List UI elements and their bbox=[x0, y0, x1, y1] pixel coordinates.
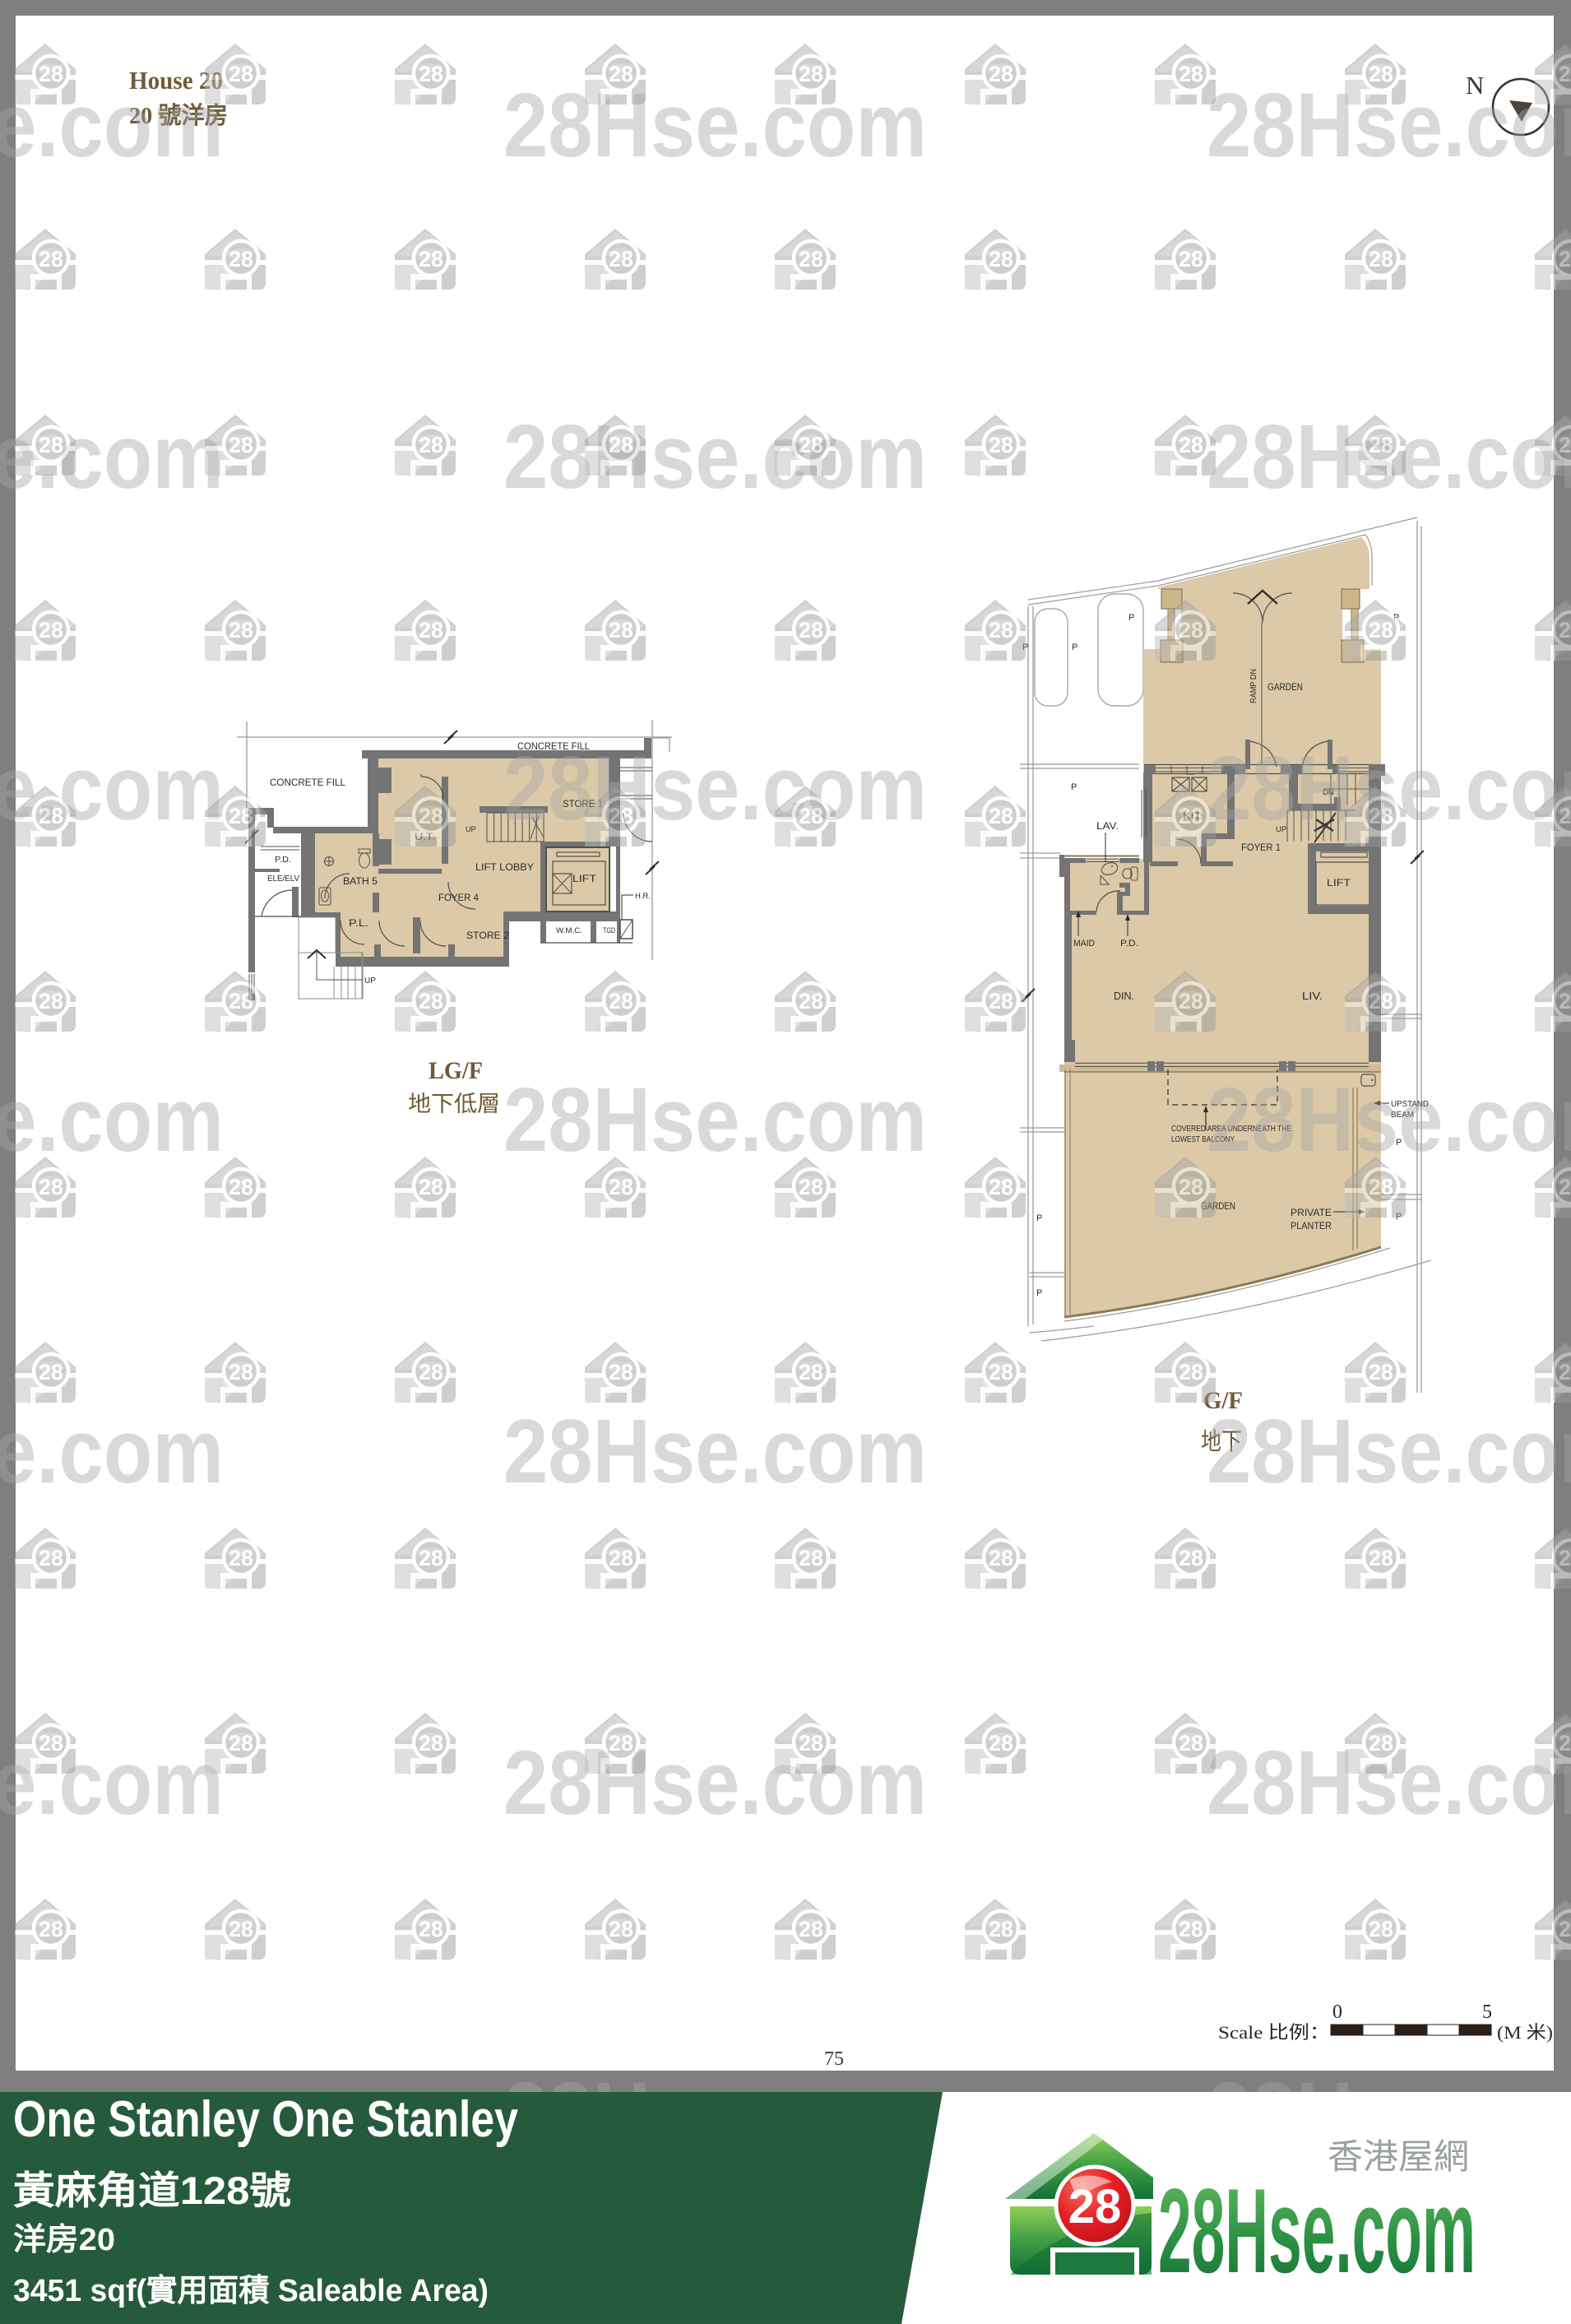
svg-text:28Hse.com: 28Hse.com bbox=[503, 738, 927, 839]
svg-text:LG/F: LG/F bbox=[429, 1057, 483, 1084]
svg-text:CONCRETE FILL: CONCRETE FILL bbox=[270, 777, 345, 788]
svg-text:LIFT LOBBY: LIFT LOBBY bbox=[475, 861, 534, 873]
svg-text:地下低層: 地下低層 bbox=[408, 1092, 500, 1116]
svg-text:LIV.: LIV. bbox=[1302, 990, 1323, 1002]
svg-text:28Hse.com: 28Hse.com bbox=[0, 1069, 224, 1171]
svg-text:0: 0 bbox=[1332, 2002, 1342, 2023]
svg-text:One Stanley One Stanley: One Stanley One Stanley bbox=[13, 2091, 518, 2148]
svg-text:28Hse.com: 28Hse.com bbox=[0, 1401, 224, 1502]
svg-text:UP: UP bbox=[364, 976, 376, 986]
svg-text:3451 sqf(實用面積 Saleable Area): 3451 sqf(實用面積 Saleable Area) bbox=[13, 2274, 489, 2308]
svg-text:28Hse.com: 28Hse.com bbox=[1207, 1401, 1571, 1502]
svg-text:PLANTER: PLANTER bbox=[1291, 1222, 1332, 1232]
svg-text:洋房20: 洋房20 bbox=[13, 2223, 115, 2257]
svg-text:ELE/ELV: ELE/ELV bbox=[267, 874, 299, 884]
svg-text:黃麻角道128號: 黃麻角道128號 bbox=[13, 2169, 291, 2212]
svg-text:P: P bbox=[1036, 1288, 1042, 1298]
svg-text:5: 5 bbox=[1482, 2002, 1492, 2023]
svg-text:TGD: TGD bbox=[603, 926, 615, 935]
svg-text:P: P bbox=[1071, 782, 1077, 792]
svg-text:P.D.: P.D. bbox=[1120, 939, 1138, 949]
svg-text:STORE 2: STORE 2 bbox=[466, 930, 509, 941]
svg-text:FOYER 1: FOYER 1 bbox=[1241, 842, 1281, 853]
svg-text:28Hse.com: 28Hse.com bbox=[503, 1069, 927, 1171]
svg-text:P: P bbox=[1128, 613, 1134, 623]
svg-text:P: P bbox=[1072, 642, 1077, 652]
svg-text:Scale 比例：: Scale 比例： bbox=[1218, 2022, 1330, 2043]
svg-text:RAMP DN: RAMP DN bbox=[1249, 669, 1258, 703]
svg-text:P.D.: P.D. bbox=[275, 856, 291, 865]
svg-text:香港屋網: 香港屋網 bbox=[1328, 2137, 1469, 2176]
svg-text:PRIVATE: PRIVATE bbox=[1291, 1208, 1332, 1218]
svg-text:GARDEN: GARDEN bbox=[1267, 681, 1303, 693]
svg-text:H.R.: H.R. bbox=[635, 892, 651, 901]
svg-text:W.M.C.: W.M.C. bbox=[556, 926, 582, 935]
svg-text:LIFT: LIFT bbox=[572, 873, 597, 884]
svg-text:P.L.: P.L. bbox=[349, 919, 368, 929]
svg-text:28Hse.com: 28Hse.com bbox=[1207, 1069, 1571, 1171]
svg-text:MAID: MAID bbox=[1073, 939, 1095, 949]
svg-text:28: 28 bbox=[1068, 2180, 1122, 2234]
svg-text:28Hse.com: 28Hse.com bbox=[503, 1401, 927, 1502]
svg-text:28Hse.com: 28Hse.com bbox=[503, 406, 927, 508]
svg-text:FOYER 4: FOYER 4 bbox=[438, 892, 479, 903]
svg-text:P: P bbox=[1036, 1213, 1042, 1223]
svg-text:28Hse.com: 28Hse.com bbox=[1158, 2164, 1476, 2298]
svg-text:28Hse.com: 28Hse.com bbox=[503, 75, 927, 176]
svg-text:UP: UP bbox=[466, 825, 476, 833]
svg-text:DIN.: DIN. bbox=[1114, 990, 1134, 1002]
svg-text:(M 米): (M 米) bbox=[1497, 2022, 1553, 2043]
svg-text:28Hse.com: 28Hse.com bbox=[503, 1733, 927, 1834]
svg-text:LAV.: LAV. bbox=[1096, 822, 1119, 832]
svg-text:LIFT: LIFT bbox=[1327, 877, 1351, 888]
svg-text:BATH 5: BATH 5 bbox=[343, 877, 378, 887]
